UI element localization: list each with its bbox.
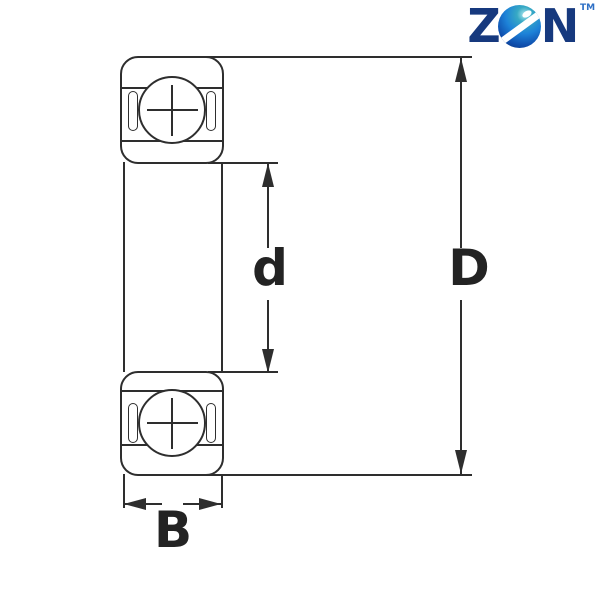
seal-left — [128, 91, 138, 131]
d-label: d — [244, 240, 296, 296]
bore-line-right — [221, 162, 224, 372]
D-dimension-line-lower — [460, 300, 462, 474]
arrow-down-icon — [262, 349, 274, 373]
bearing-dimension-diagram: Z N TM d D B — [0, 0, 600, 600]
globe-slash-icon — [498, 8, 541, 48]
seal-left — [128, 403, 138, 443]
arrow-up-icon — [262, 163, 274, 187]
ball-center-cross — [171, 398, 173, 449]
logo-letter-n: N — [541, 4, 579, 48]
zen-globe-icon — [498, 5, 541, 48]
D-label: D — [441, 240, 497, 296]
arrow-down-icon — [455, 450, 467, 474]
B-label: B — [147, 505, 199, 555]
logo-letter-z: Z — [466, 4, 502, 48]
bore-line-left — [123, 162, 126, 372]
arrow-right-icon — [199, 498, 221, 510]
arrow-up-icon — [455, 58, 467, 82]
arrow-left-icon — [124, 498, 146, 510]
D-dimension-line-upper — [460, 58, 462, 248]
seal-right — [206, 403, 216, 443]
ball-center-cross — [171, 85, 173, 136]
D-extension-top — [205, 56, 472, 58]
trademark-label: TM — [580, 4, 595, 13]
zen-logo: Z N TM — [460, 0, 600, 52]
seal-right — [206, 91, 216, 131]
D-extension-bottom — [205, 474, 472, 476]
